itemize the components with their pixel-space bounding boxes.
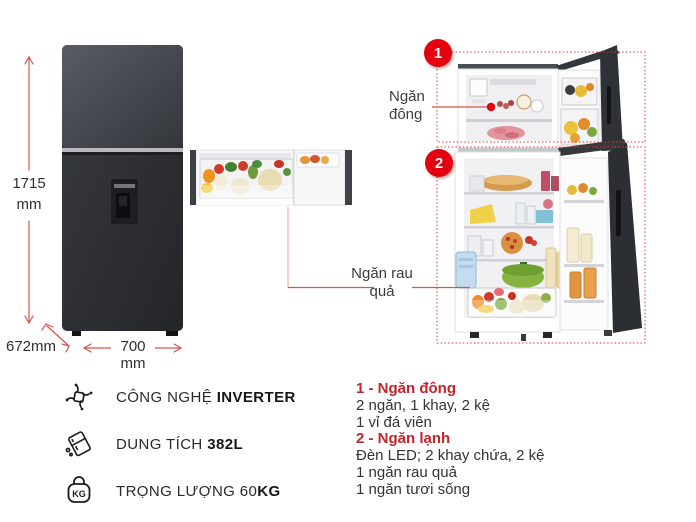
spec-text-capacity: DUNG TÍCH 382L bbox=[116, 436, 243, 453]
width-value: 700 bbox=[111, 338, 155, 355]
spec-list: CÔNG NGHỆ INVERTER DUNG TÍCH 382L bbox=[62, 379, 296, 520]
fresh-zone-badge: 2 bbox=[425, 149, 453, 177]
spec-row-weight: KG TRỌNG LƯỢNG 60KG bbox=[62, 473, 296, 509]
freezer-callout-dot bbox=[487, 103, 495, 111]
vegetable-drawer bbox=[468, 288, 556, 317]
crisper-photo bbox=[190, 150, 352, 205]
freezer-label-line1: Ngăn bbox=[389, 88, 435, 106]
note-fresh-detail-3: 1 ngăn tươi sống bbox=[356, 482, 646, 499]
svg-text:KG: KG bbox=[72, 489, 86, 499]
spec-row-capacity: DUNG TÍCH 382L bbox=[62, 426, 296, 462]
veg-label-line1: Ngăn rau bbox=[350, 265, 414, 283]
capacity-icon bbox=[62, 426, 96, 462]
freezer-label-line2: đông bbox=[389, 106, 435, 124]
water-dispenser bbox=[111, 179, 138, 224]
compartment-notes: 1 - Ngăn đông 2 ngăn, 1 khay, 2 kệ 1 vỉ … bbox=[356, 381, 646, 499]
note-fresh-detail-2: 1 ngăn rau quả bbox=[356, 465, 646, 482]
height-value: 1715 bbox=[6, 173, 52, 194]
spec-row-inverter: CÔNG NGHỆ INVERTER bbox=[62, 379, 296, 415]
product-infographic: 1 2 1715 mm 672mm 700 mm Ngăn đông Ngăn … bbox=[0, 0, 696, 522]
freezer-zone-badge: 1 bbox=[424, 39, 452, 67]
weight-icon: KG bbox=[62, 473, 96, 509]
closed-fridge-photo bbox=[62, 45, 183, 336]
spec-text-inverter: CÔNG NGHỆ INVERTER bbox=[116, 389, 296, 406]
height-dimension-label: 1715 mm bbox=[6, 173, 52, 215]
open-fridge-photo bbox=[455, 45, 642, 341]
freezer-compartment-label: Ngăn đông bbox=[389, 88, 435, 123]
width-unit: mm bbox=[111, 355, 155, 372]
note-freezer-detail-1: 2 ngăn, 1 khay, 2 kệ bbox=[356, 398, 646, 415]
height-unit: mm bbox=[6, 194, 52, 215]
inverter-icon bbox=[62, 379, 96, 415]
width-dimension-label: 700 mm bbox=[111, 338, 155, 372]
note-freezer-heading: 1 - Ngăn đông bbox=[356, 381, 646, 398]
note-freezer-detail-2: 1 vỉ đá viên bbox=[356, 415, 646, 432]
note-fresh-heading: 2 - Ngăn lạnh bbox=[356, 431, 646, 448]
spec-text-weight: TRỌNG LƯỢNG 60KG bbox=[116, 483, 281, 500]
depth-dimension-label: 672mm bbox=[6, 338, 56, 356]
veg-label-line2: quả bbox=[350, 283, 414, 301]
note-fresh-detail-1: Đèn LED; 2 khay chứa, 2 kệ bbox=[356, 448, 646, 465]
vegetable-drawer-label: Ngăn rau quả bbox=[350, 265, 414, 300]
